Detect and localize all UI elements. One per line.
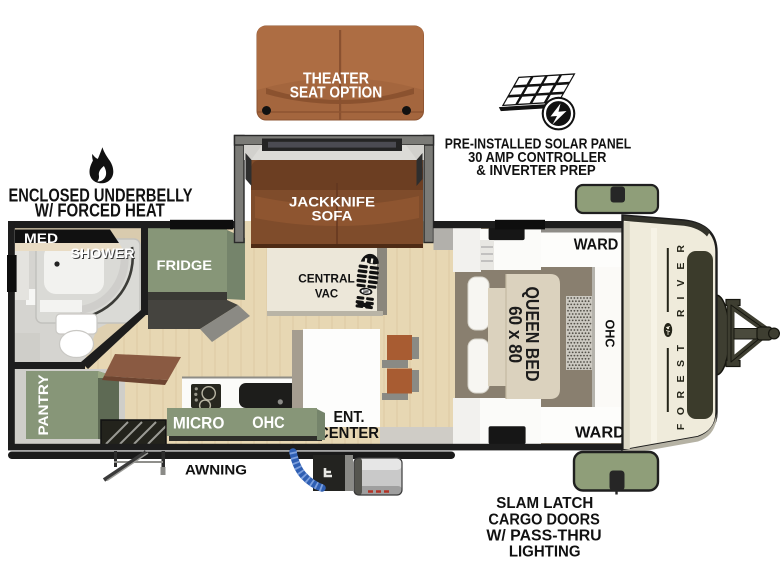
svg-text:SOFA: SOFA: [312, 209, 353, 225]
svg-text:60 x 80: 60 x 80: [505, 306, 525, 363]
svg-text:SHOWER: SHOWER: [71, 245, 135, 261]
svg-text:PANTRY: PANTRY: [35, 374, 51, 436]
svg-text:SEAT OPTION: SEAT OPTION: [290, 85, 383, 102]
svg-text:CENTER: CENTER: [318, 425, 379, 442]
svg-text:OHC: OHC: [603, 320, 618, 349]
svg-text:WARD: WARD: [575, 425, 625, 442]
svg-text:OHC: OHC: [252, 413, 284, 432]
svg-text:W/ FORCED HEAT: W/ FORCED HEAT: [35, 200, 165, 221]
svg-text:SLAM LATCH: SLAM LATCH: [496, 495, 593, 512]
svg-text:QUEEN BED: QUEEN BED: [522, 287, 542, 382]
svg-text:MED: MED: [24, 230, 58, 246]
svg-text:VAC: VAC: [315, 288, 338, 300]
svg-text:CARGO DOORS: CARGO DOORS: [488, 511, 599, 528]
svg-text:& INVERTER PREP: & INVERTER PREP: [476, 163, 596, 179]
svg-text:AWNING: AWNING: [185, 463, 247, 478]
svg-text:CENTRAL: CENTRAL: [298, 273, 355, 285]
svg-text:MICRO: MICRO: [173, 414, 225, 433]
svg-text:WARD: WARD: [574, 237, 619, 254]
svg-text:ENT.: ENT.: [334, 409, 365, 426]
svg-text:FRIDGE: FRIDGE: [157, 257, 213, 273]
svg-text:LIGHTING: LIGHTING: [509, 544, 581, 561]
svg-text:W/ PASS-THRU: W/ PASS-THRU: [486, 528, 601, 545]
